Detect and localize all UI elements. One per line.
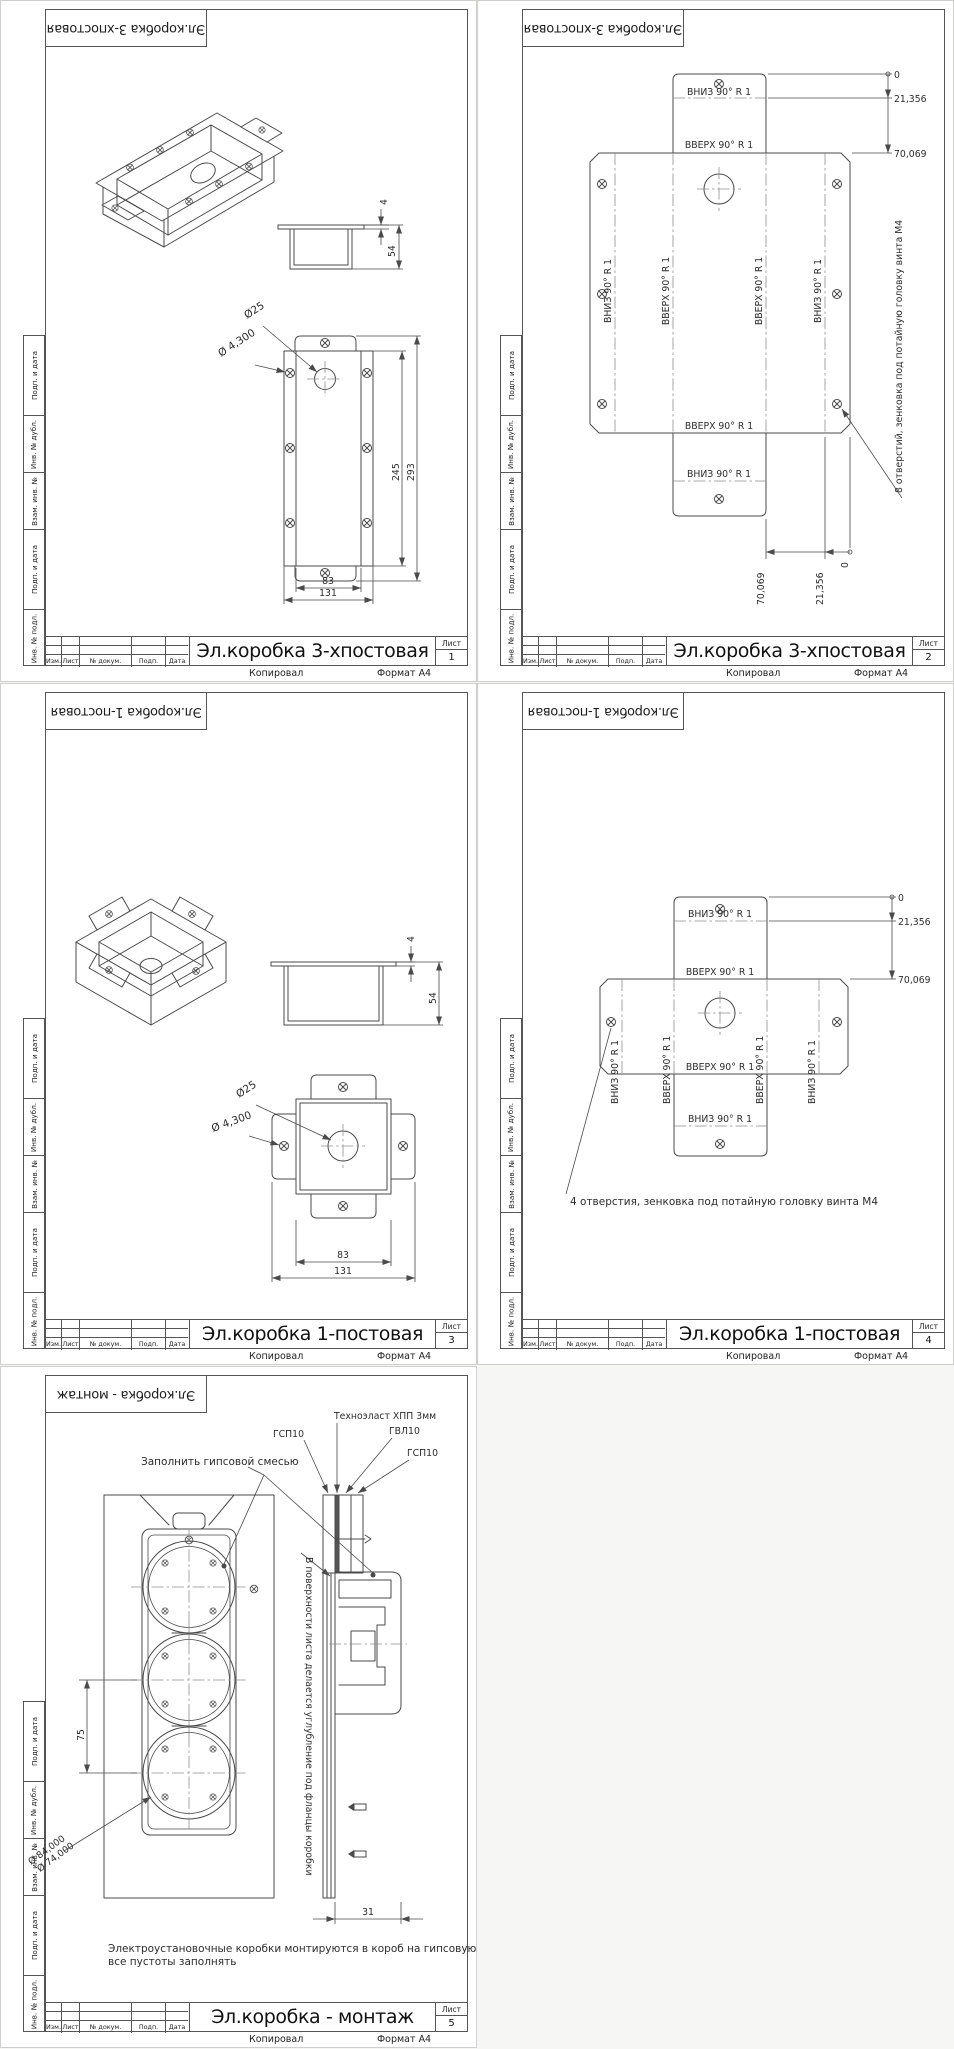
note-text: 8 отверстий, зенковка под потайную голов… [894,220,905,493]
bend-label: ВНИЗ 90° R 1 [813,259,824,323]
bend-label: ВНИЗ 90° R 1 [603,259,614,323]
ordinate-1: 21,356 [894,94,927,105]
label-hole-dia: Ø25 [234,1079,259,1101]
layer-label-tehno: Техноэласт ХПП 3мм [333,1411,436,1422]
ordinate-1: 21,356 [898,917,931,928]
layer-label-gvl: ГВЛ10 [389,1426,420,1437]
ordinate-2: 70,069 [756,572,767,605]
drawing-s2: ВНИЗ 90° R 1 ВВЕРХ 90° R 1 ВВЕРХ 90° R 1… [478,1,954,683]
layer-label-gsp-left: ГСП10 [273,1429,304,1440]
ordinate-dims-right: 0 21,356 70,069 [769,893,931,986]
front-view: Ø25 Ø 4,300 83 131 [210,1075,415,1282]
side-view: 4 54 [271,936,443,1025]
flat-pattern-3gang: ВНИЗ 90° R 1 ВВЕРХ 90° R 1 ВВЕРХ 90° R 1… [590,74,850,516]
bend-label: ВНИЗ 90° R 1 [688,909,752,920]
label-hole-dia: Ø25 [242,300,267,322]
bend-label: ВВЕРХ 90° R 1 [686,967,754,978]
ordinate-0: 0 [898,893,904,904]
mount-bolt [348,1850,366,1858]
sheet-5: Эл.коробка - монтаж Подп. и дата Инв. № … [0,1366,477,2048]
section-view: 31 В поверхности листа делается углублен… [301,1495,423,1924]
mount-note-line2: все пустоты заполнять [108,1956,236,1968]
bend-label: ВВЕРХ 90° R 1 [686,1062,754,1073]
bend-label: ВНИЗ 90° R 1 [687,87,751,98]
dim-depth: 31 [362,1907,374,1918]
ordinate-dims-right: 0 21,356 70,069 [768,70,927,160]
mount-bolt [348,1803,366,1811]
bend-label: ВВЕРХ 90° R 1 [755,1036,766,1104]
dim-outer-width: 131 [319,588,337,599]
sheet-1: Эл.коробка 3-хпостовая Подп. и дата Инв.… [0,0,477,682]
dim-pitch: 75 [76,1729,87,1741]
dim-inner-height: 245 [391,463,402,481]
ordinate-2: 70,069 [894,149,927,160]
dim-outer-height: 293 [406,463,417,481]
bend-label: ВНИЗ 90° R 1 [610,1040,621,1104]
dim-depth: 54 [428,992,439,1004]
layer-labels: ГСП10 Техноэласт ХПП 3мм ГВЛ10 ГСП10 [273,1411,438,1493]
sheet-3: Эл.коробка 1-постовая Подп. и дата Инв. … [0,683,477,1365]
bend-label: ВНИЗ 90° R 1 [687,469,751,480]
dim-depth: 54 [387,245,398,257]
dim-inner-width: 83 [337,1250,349,1261]
front-view: Ø25 Ø 4,300 245 293 83 131 [216,300,421,604]
bend-label: ВВЕРХ 90° R 1 [685,421,753,432]
drawing-s1: 4 54 Ø25 Ø 4,300 245 293 83 131 [1,1,478,683]
label-screw-hole-dia: Ø 4,300 [210,1109,253,1135]
socket-dia-label: Ø 84,000 Ø 74,000 [26,1832,76,1877]
side-view: 4 54 [278,199,403,269]
front-mount-view: 75 Ø 84,000 Ø 74,000 [26,1495,274,1898]
bend-label: ВВЕРХ 90° R 1 [685,140,753,151]
drawing-s5: 75 Ø 84,000 Ø 74,000 31 В поверхности ли… [1,1367,478,2049]
fill-note-text: Заполнить гипсовой смесью [141,1456,299,1468]
mount-note: Электроустановочные коробки монтируются … [108,1943,478,1968]
drawing-s4: ВНИЗ 90° R 1 ВВЕРХ 90° R 1 ВВЕРХ 90° R 1… [478,684,954,1366]
layer-label-gsp-right: ГСП10 [407,1448,438,1459]
bend-label: ВНИЗ 90° R 1 [807,1040,818,1104]
bend-label: ВНИЗ 90° R 1 [688,1114,752,1125]
countersink-note: 8 отверстий, зенковка под потайную голов… [842,220,905,498]
dim-thickness: 4 [406,936,417,942]
bend-label: ВВЕРХ 90° R 1 [754,257,765,325]
ordinate-0: 0 [840,562,851,568]
fill-note: Заполнить гипсовой смесью [141,1456,376,1578]
ordinate-0: 0 [894,70,900,81]
isometric-view-3gang [96,113,283,247]
label-screw-hole-dia: Ø 4,300 [216,327,257,360]
sheet-2: Эл.коробка 3-хпостовая Подп. и дата Инв.… [477,0,954,682]
ordinate-dims-bottom: 70,069 21,356 0 [756,437,852,605]
dim-inner-width: 83 [322,576,334,587]
mount-note-line1: Электроустановочные коробки монтируются … [108,1943,478,1955]
bend-label: ВВЕРХ 90° R 1 [661,257,672,325]
dim-thickness: 4 [379,199,390,205]
recess-note: В поверхности листа делается углубление … [303,1557,314,1875]
sheet-4: Эл.коробка 1-постовая Подп. и дата Инв. … [477,683,954,1365]
flat-pattern-1gang: ВНИЗ 90° R 1 ВВЕРХ 90° R 1 ВВЕРХ 90° R 1… [600,897,848,1156]
dim-outer-width: 131 [334,1266,352,1277]
bend-label: ВВЕРХ 90° R 1 [662,1036,673,1104]
isometric-view-1gang [76,897,226,1025]
ordinate-2: 70,069 [898,975,931,986]
drawing-s3: 4 54 Ø25 Ø 4,300 83 131 [1,684,478,1366]
note-text: 4 отверстия, зенковка под потайную голов… [570,1196,878,1208]
ordinate-1: 21,356 [815,572,826,605]
